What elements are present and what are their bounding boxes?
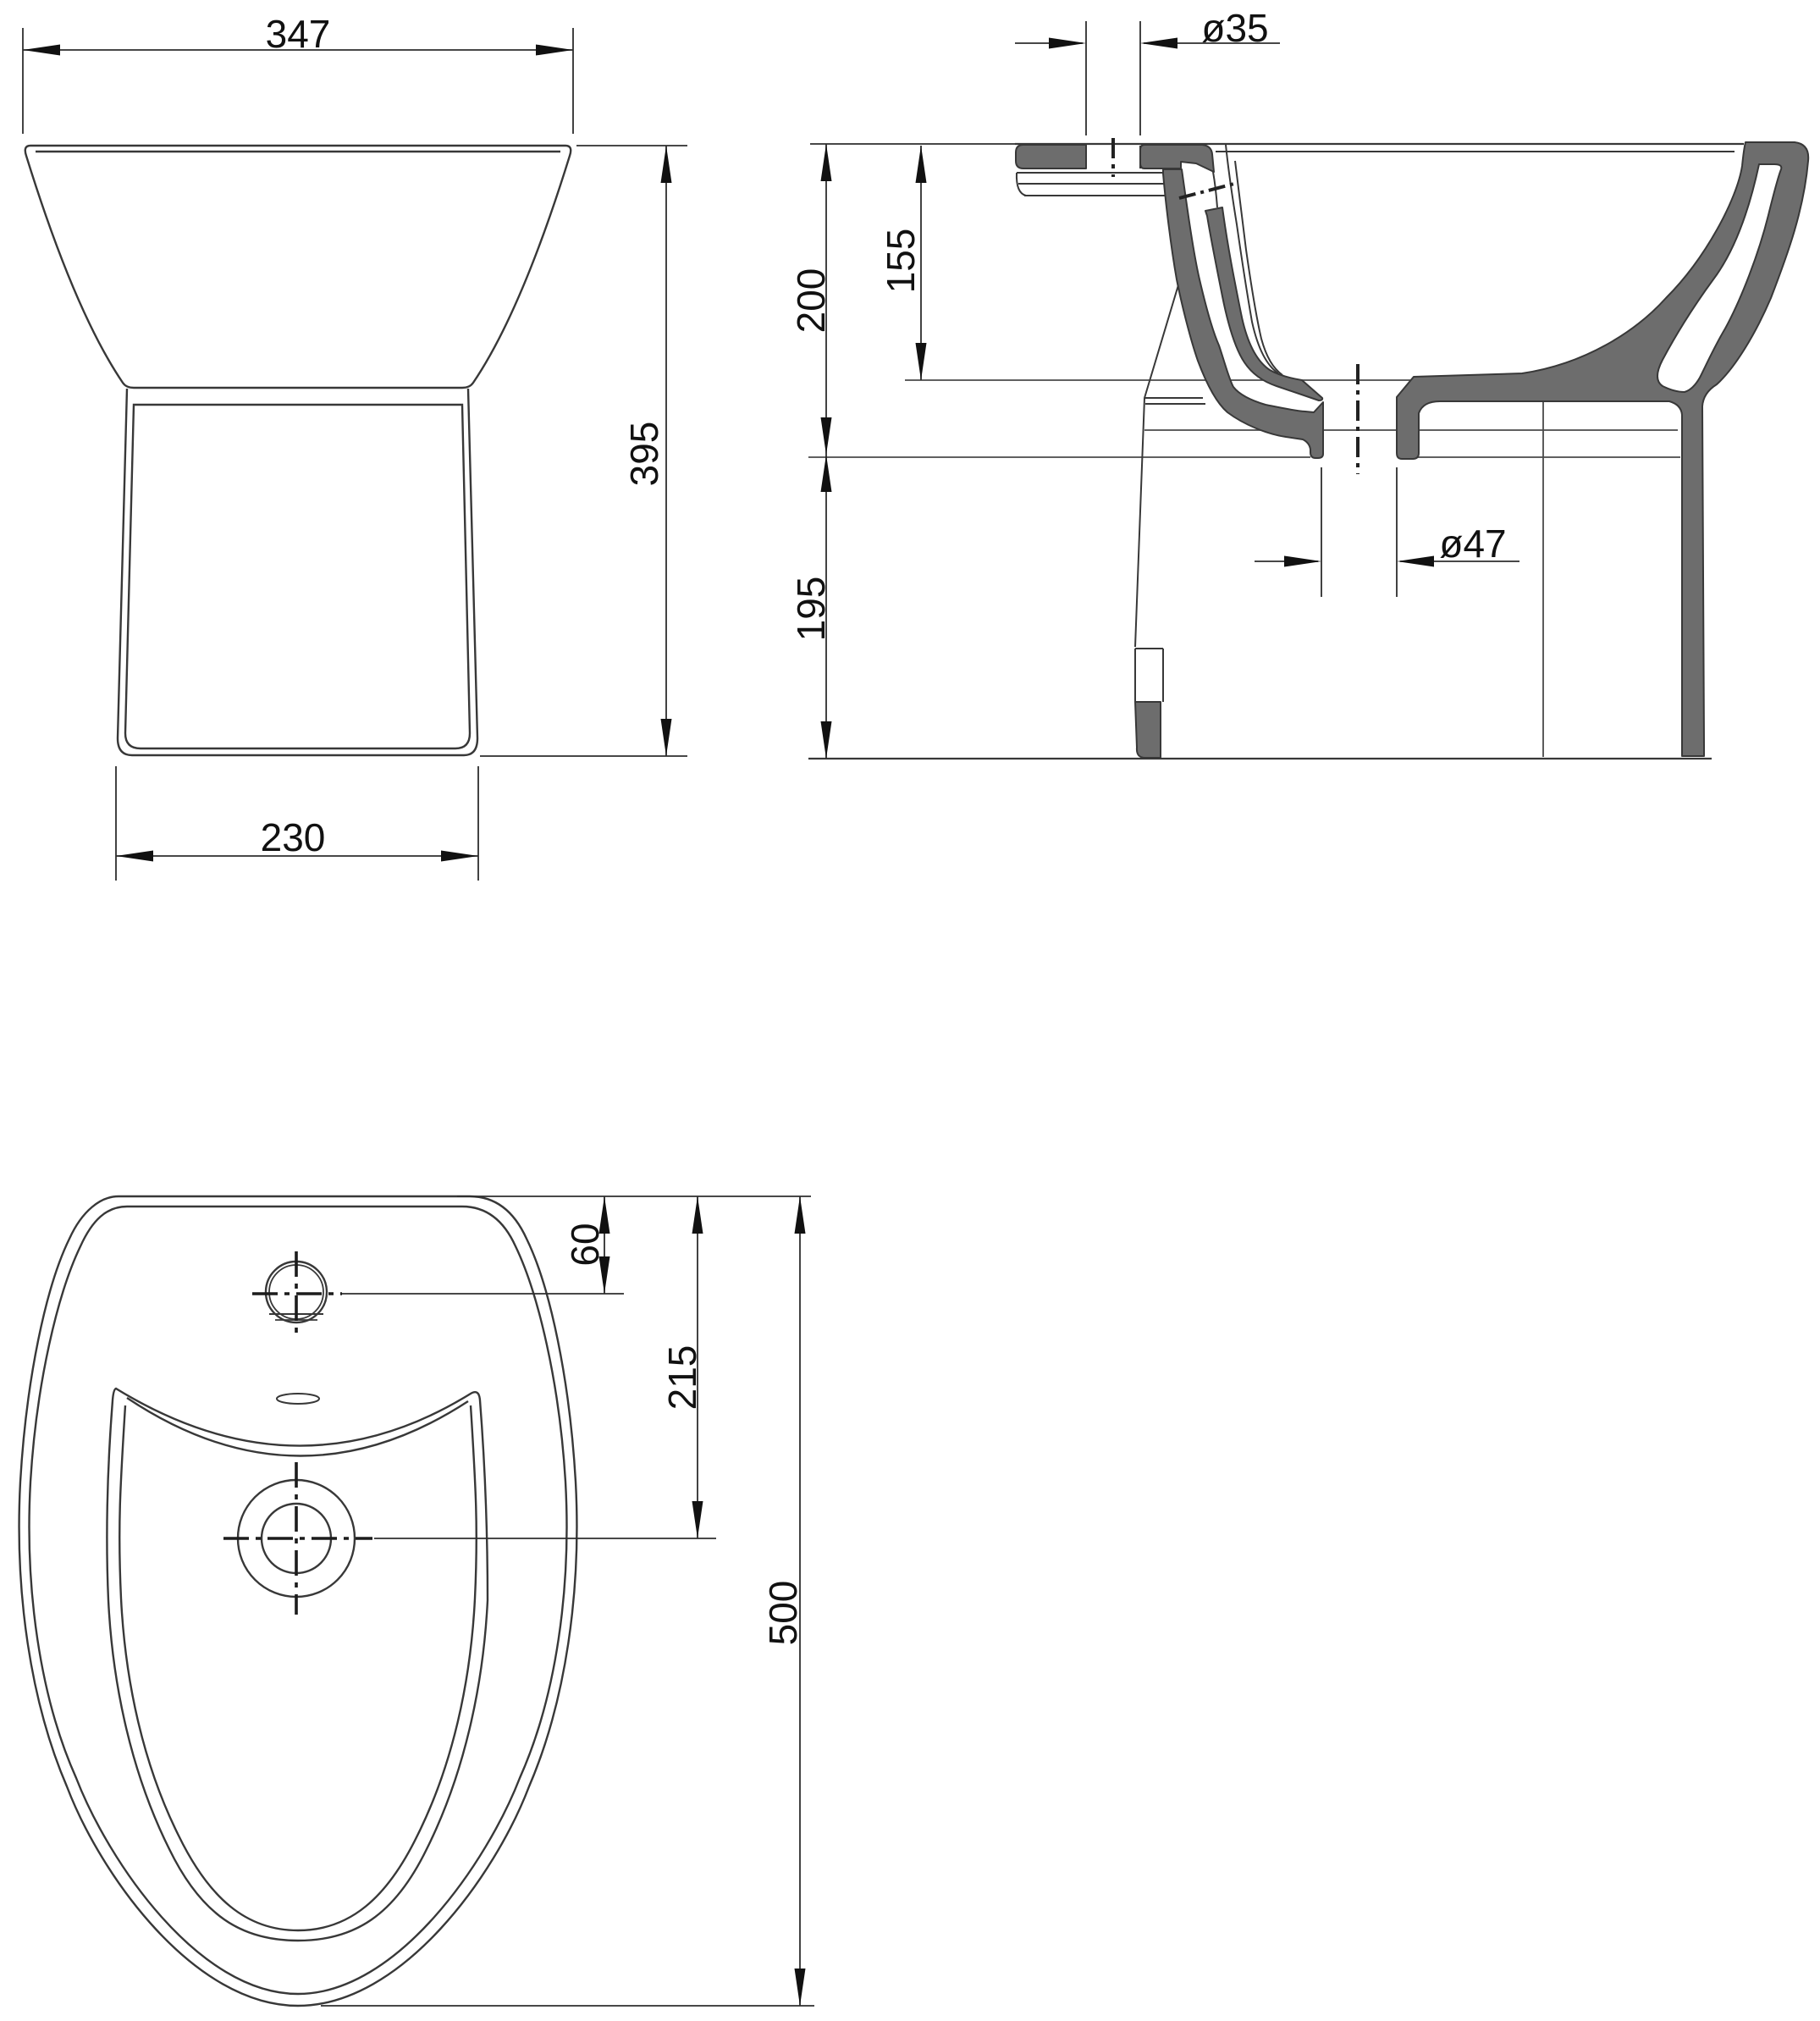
svg-text:60: 60 (563, 1223, 607, 1266)
svg-text:155: 155 (879, 229, 923, 294)
svg-text:500: 500 (761, 1581, 805, 1646)
svg-text:347: 347 (266, 12, 331, 56)
svg-text:200: 200 (789, 268, 833, 334)
svg-text:215: 215 (660, 1345, 704, 1411)
svg-text:ø35: ø35 (1201, 6, 1268, 50)
svg-text:ø47: ø47 (1439, 522, 1506, 566)
svg-text:395: 395 (622, 422, 666, 487)
svg-text:230: 230 (261, 815, 326, 859)
svg-text:195: 195 (789, 577, 833, 642)
